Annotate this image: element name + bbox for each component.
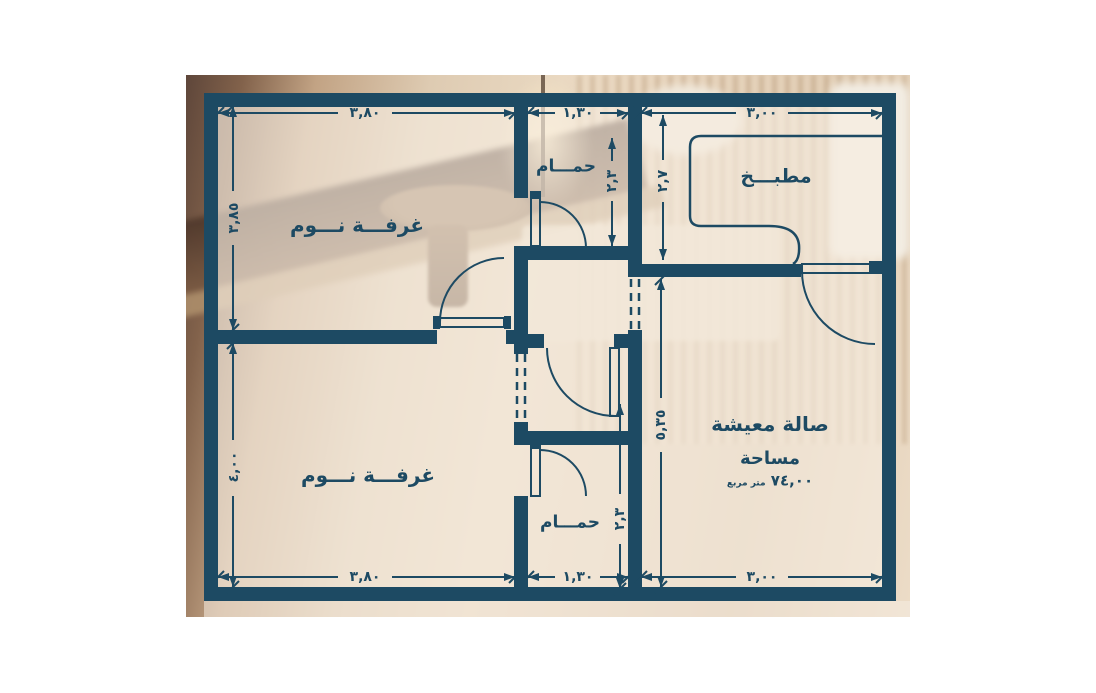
door-stop-bedroom-left [433, 316, 440, 329]
dim-bottom-bath-width: ١,٣٠ [563, 570, 594, 584]
door-swing-hall [547, 348, 615, 416]
dim-top-bath-height: ٢,٣ [605, 170, 619, 192]
dim-bottom-bedroom-height: ٤,٠٠ [227, 452, 241, 483]
wall-bedroom-divider-end [506, 330, 528, 344]
wall-outer-right [882, 93, 896, 601]
area-number: ٧٤,٠٠ [771, 472, 813, 490]
wall-mid-left-stub [514, 344, 528, 354]
door-leaf-bath-bottom [531, 448, 540, 496]
room-label-bathroom-top: حمـــام [536, 159, 596, 176]
wall-bedroom-divider [218, 330, 437, 344]
wall-bath-top-bottom [528, 246, 628, 260]
living-area-label: مساحة [740, 450, 800, 468]
door-swing-kitchen [802, 271, 875, 344]
floor-plan-drawing [0, 0, 1096, 693]
door-leaf-bath-top [531, 198, 540, 246]
dim-kitchen-height: ٢,٧ [656, 170, 670, 192]
wall-outer-bottom [204, 587, 896, 601]
kitchen-counter [690, 136, 882, 264]
dim-bottom-bedroom-width: ٣,٨٠ [350, 570, 381, 584]
dim-top-bedroom-height: ٣,٨٥ [227, 203, 241, 234]
door-stop-bedroom-right [504, 316, 511, 329]
wall-outer-top [204, 93, 896, 107]
room-label-bathroom-bottom: حمـــام [540, 515, 600, 532]
wall-hall-bottom-left [528, 334, 544, 348]
dim-living-height: ٥,٣٥ [654, 410, 668, 441]
door-swing-bath-top [540, 202, 586, 248]
living-area-value: ٧٤,٠٠ متر مربع [727, 474, 813, 489]
wall-bath-bottom-top [528, 431, 628, 445]
floor-plan-page: غرفـــة نـــوم غرفـــة نـــوم حمـــام حم… [0, 0, 1096, 693]
door-stop-bath-top [530, 191, 541, 198]
wall-mid-left-lower [514, 422, 528, 445]
dim-bottom-bath-height: ٢,٣ [613, 508, 627, 530]
room-label-living: صالة معيشة [711, 414, 829, 434]
room-label-bedroom-top: غرفـــة نـــوم [290, 215, 424, 235]
wall-mid-left-bottom [514, 496, 528, 587]
room-label-bedroom-bottom: غرفـــة نـــوم [301, 465, 435, 485]
door-leaf-bedroom-top [440, 318, 504, 327]
room-label-kitchen: مطبـــخ [740, 168, 811, 187]
wall-mid-right-upper [628, 107, 642, 277]
dim-top-bedroom-width: ٣,٨٠ [350, 106, 381, 120]
door-leaf-kitchen [802, 264, 876, 273]
area-unit: متر مربع [727, 479, 766, 489]
dim-living-width: ٣,٠٠ [747, 570, 778, 584]
dashed-openings [517, 279, 639, 422]
wall-mid-right-lower [628, 330, 642, 587]
door-swing-bath-bottom [540, 450, 586, 496]
door-swing-bedroom-top [440, 258, 504, 322]
door-leaf-hall [610, 348, 619, 416]
wall-outer-left [204, 93, 218, 601]
wall-hall-bottom-right [614, 334, 628, 348]
wall-mid-left-upper [514, 107, 528, 198]
dim-top-bath-width: ١,٣٠ [563, 106, 594, 120]
wall-mid-left-mid [514, 246, 528, 344]
dim-kitchen-width: ٣,٠٠ [747, 106, 778, 120]
door-stop-bath-bottom [530, 441, 541, 448]
